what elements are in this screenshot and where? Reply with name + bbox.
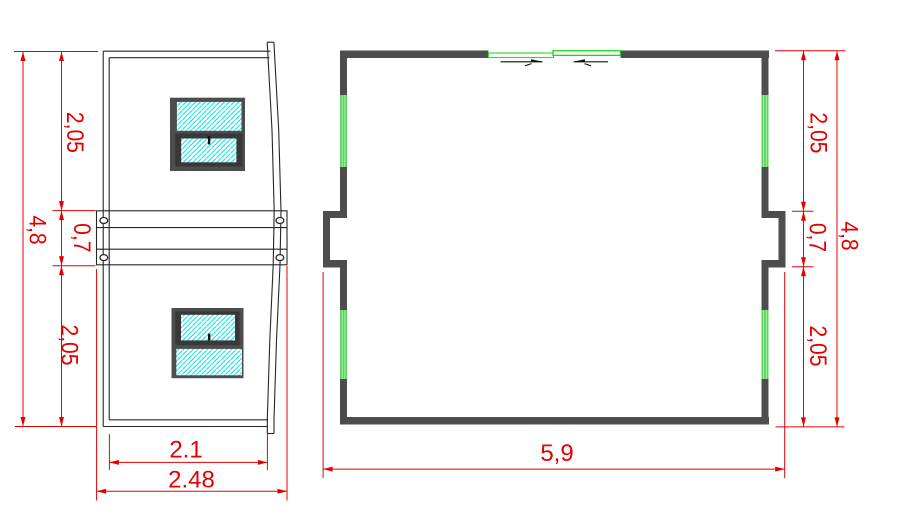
svg-text:4,8: 4,8 [836, 221, 863, 250]
svg-text:2,05: 2,05 [62, 112, 89, 153]
svg-text:5,9: 5,9 [540, 440, 573, 467]
svg-text:2,05: 2,05 [805, 325, 832, 366]
svg-text:0,7: 0,7 [69, 223, 96, 252]
svg-text:2.48: 2.48 [168, 466, 215, 493]
svg-text:2.1: 2.1 [169, 437, 202, 464]
svg-text:0,7: 0,7 [804, 223, 831, 252]
svg-text:2,05: 2,05 [56, 324, 83, 365]
svg-text:2,05: 2,05 [805, 112, 832, 153]
svg-text:4,8: 4,8 [24, 215, 51, 244]
